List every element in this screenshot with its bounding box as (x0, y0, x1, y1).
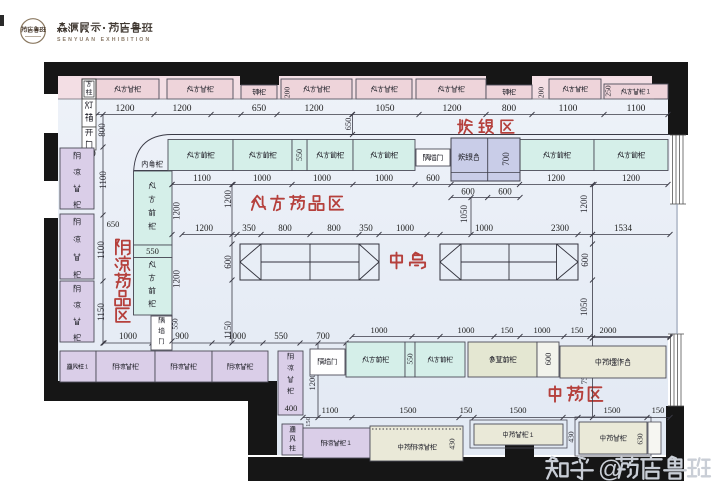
svg-text:1000: 1000 (396, 223, 415, 233)
svg-text:700: 700 (316, 331, 330, 341)
svg-text:1500: 1500 (510, 405, 527, 415)
svg-text:550: 550 (274, 331, 288, 341)
svg-text:1000: 1000 (253, 173, 272, 183)
svg-text:150: 150 (571, 325, 584, 335)
svg-text:550: 550 (146, 246, 159, 256)
svg-text:350: 350 (242, 223, 256, 233)
svg-text:1000: 1000 (534, 325, 551, 335)
svg-text:900: 900 (175, 331, 189, 341)
svg-text:1200: 1200 (307, 374, 317, 391)
svg-text:1200: 1200 (305, 104, 324, 114)
svg-text:1000: 1000 (371, 325, 388, 335)
svg-text:1: 1 (530, 432, 534, 439)
svg-text:800: 800 (97, 123, 107, 137)
svg-text:1200: 1200 (622, 173, 641, 183)
svg-text:1150: 1150 (223, 321, 233, 339)
svg-text:800: 800 (278, 223, 292, 233)
svg-text:1100: 1100 (193, 173, 211, 183)
svg-text:350: 350 (359, 223, 373, 233)
svg-text:800: 800 (327, 223, 341, 233)
svg-text:800: 800 (502, 104, 517, 114)
svg-text:150: 150 (652, 405, 665, 415)
svg-text:550: 550 (295, 149, 304, 161)
svg-text:150: 150 (460, 405, 473, 415)
svg-text:1200: 1200 (172, 202, 182, 221)
svg-text:1000: 1000 (313, 173, 332, 183)
svg-text:650: 650 (252, 104, 267, 114)
svg-text:400: 400 (285, 403, 298, 413)
svg-text:250: 250 (604, 85, 613, 97)
svg-text:650: 650 (107, 219, 120, 229)
svg-text:430: 430 (448, 438, 457, 450)
svg-text:1050: 1050 (579, 298, 589, 317)
svg-text:1100: 1100 (98, 171, 108, 189)
svg-text:SENYUAN EXHIBITION: SENYUAN EXHIBITION (57, 37, 151, 43)
svg-text:2300: 2300 (551, 223, 570, 233)
svg-text:1000: 1000 (475, 223, 494, 233)
svg-text:2000: 2000 (600, 325, 617, 335)
svg-text:650: 650 (343, 118, 353, 131)
svg-text:1100: 1100 (96, 241, 106, 259)
svg-text:1000: 1000 (458, 325, 475, 335)
svg-text:1050: 1050 (376, 104, 395, 114)
svg-text:1100: 1100 (559, 104, 578, 114)
svg-text:1050: 1050 (459, 205, 469, 224)
svg-text:600: 600 (498, 187, 512, 197)
svg-text:1500: 1500 (400, 405, 417, 415)
svg-text:1: 1 (85, 365, 88, 371)
svg-text:200: 200 (537, 87, 546, 99)
svg-text:600: 600 (426, 173, 440, 183)
svg-text:600: 600 (580, 253, 590, 267)
svg-text:1200: 1200 (579, 195, 589, 214)
svg-text:1500: 1500 (604, 405, 621, 415)
svg-text:1150: 1150 (96, 303, 106, 321)
svg-text:700: 700 (501, 152, 511, 166)
svg-text:430: 430 (567, 431, 576, 443)
svg-text:1200: 1200 (547, 173, 566, 183)
svg-text:1100: 1100 (627, 104, 646, 114)
svg-text:1: 1 (347, 440, 351, 447)
svg-text:1200: 1200 (195, 223, 214, 233)
svg-text:1200: 1200 (116, 104, 135, 114)
svg-text:1200: 1200 (172, 270, 182, 289)
svg-text:600: 600 (223, 255, 233, 269)
svg-text:550: 550 (406, 353, 415, 365)
svg-text:150: 150 (305, 417, 312, 427)
svg-text:600: 600 (543, 353, 553, 366)
svg-text:1200: 1200 (443, 104, 462, 114)
svg-text:630: 630 (636, 433, 645, 445)
svg-text:1534: 1534 (614, 223, 633, 233)
svg-text:1: 1 (646, 89, 650, 96)
svg-text:150: 150 (501, 325, 514, 335)
svg-text:1000: 1000 (119, 331, 138, 341)
svg-text:1100: 1100 (322, 405, 339, 415)
svg-text:1200: 1200 (223, 190, 233, 209)
svg-text:1200: 1200 (173, 104, 192, 114)
svg-text:1000: 1000 (375, 173, 394, 183)
svg-text:200: 200 (283, 87, 292, 99)
